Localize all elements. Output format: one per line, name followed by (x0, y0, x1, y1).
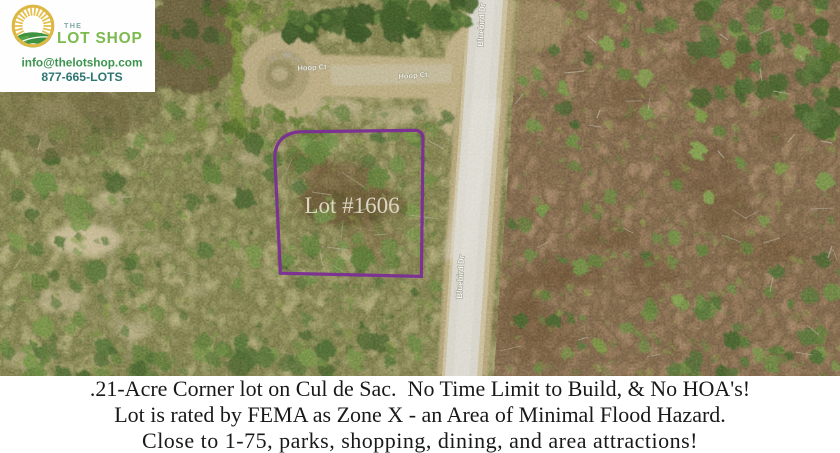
svg-text:LOT SHOP: LOT SHOP (57, 30, 143, 47)
svg-text:Hoop Ct: Hoop Ct (297, 62, 327, 73)
svg-text:Lot #1606: Lot #1606 (304, 193, 399, 218)
svg-text:info@thelotshop.com: info@thelotshop.com (22, 56, 143, 70)
svg-text:THE: THE (64, 21, 82, 30)
svg-text:877-665-LOTS: 877-665-LOTS (41, 70, 122, 84)
